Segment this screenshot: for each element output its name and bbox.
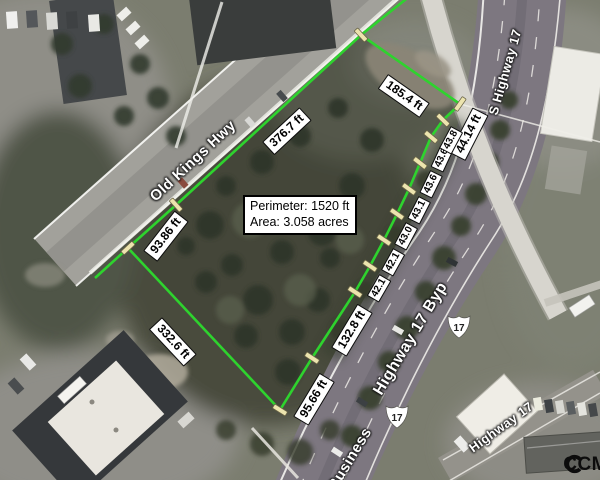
- parcel-info-box: Perimeter: 1520 ft Area: 3.058 acres: [243, 195, 357, 235]
- area-text: Area: 3.058 acres: [250, 215, 349, 231]
- shield-route-number: 17: [453, 323, 465, 334]
- perimeter-text: Perimeter: 1520 ft: [250, 199, 349, 215]
- ccm-logo-icon: [563, 454, 583, 474]
- shield-route-number: 17: [391, 413, 403, 424]
- aerial-parcel-map: 17 17 Old Kings Hwy S Highway 17 Highway…: [0, 0, 600, 480]
- watermark: CCM: [563, 454, 600, 476]
